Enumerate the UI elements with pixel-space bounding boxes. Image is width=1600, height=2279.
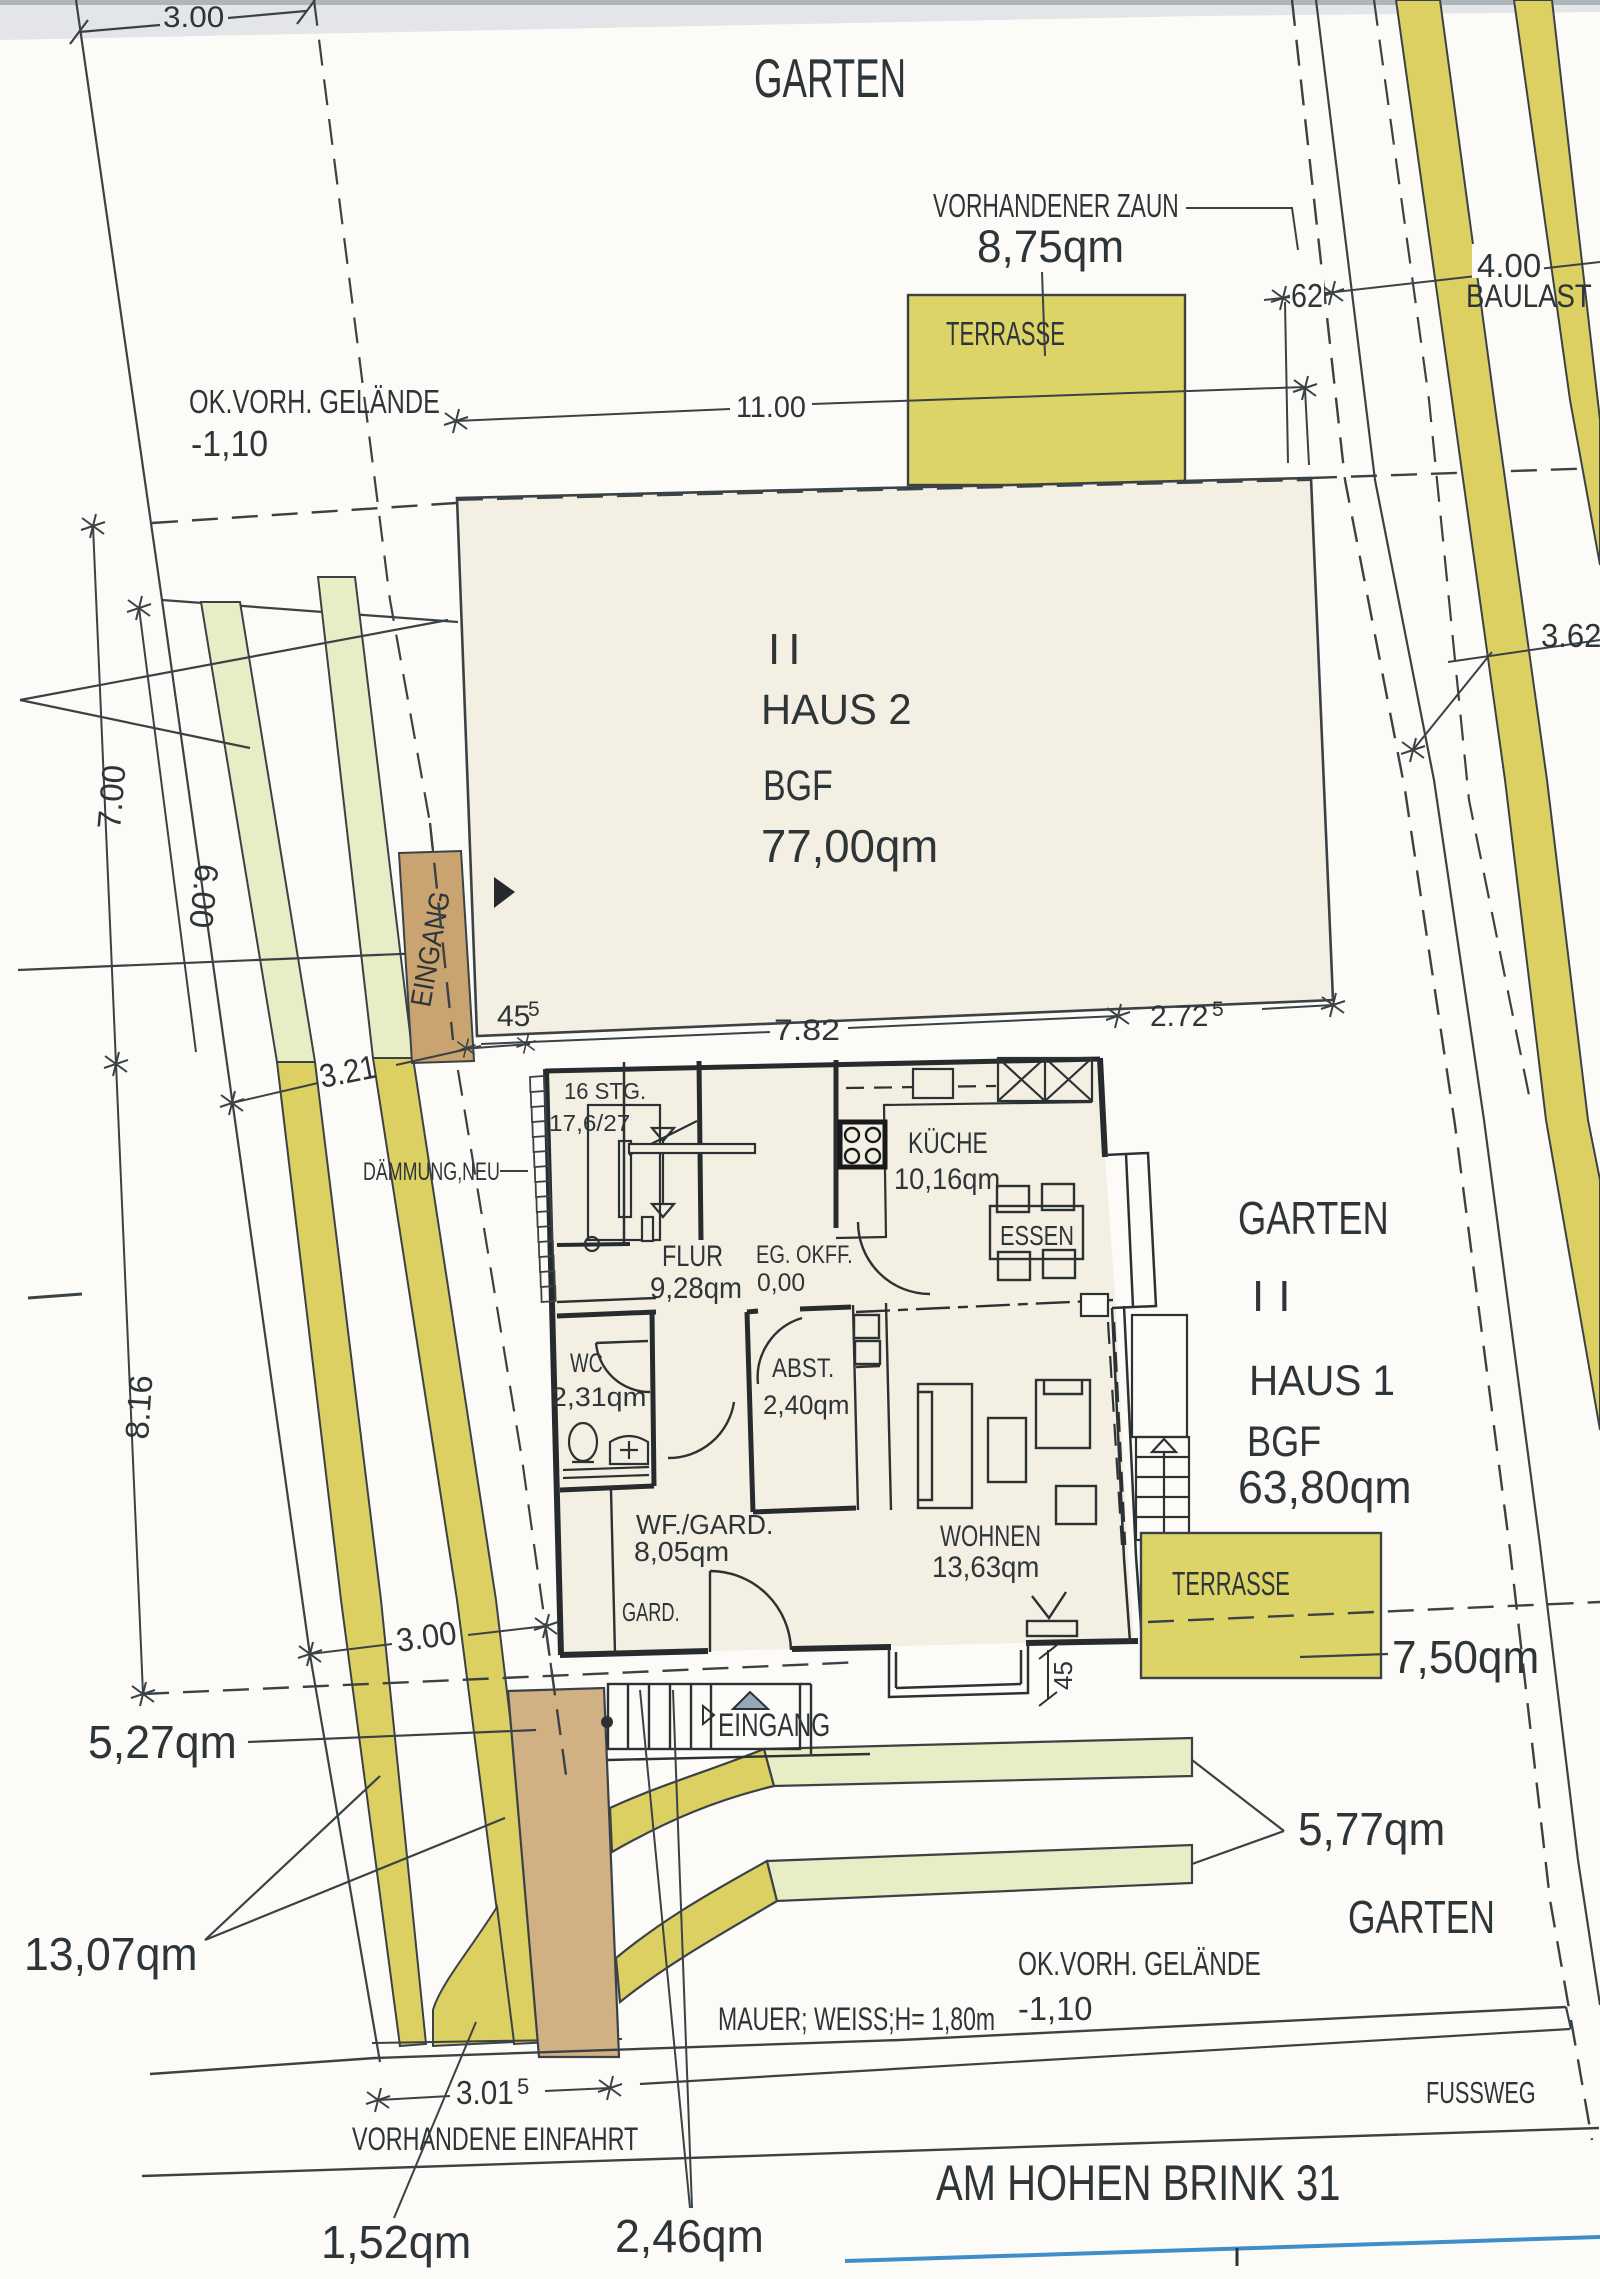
svg-text:2,31qm: 2,31qm <box>551 1382 646 1412</box>
svg-text:63,80qm: 63,80qm <box>1238 1461 1412 1513</box>
svg-text:TERRASSE: TERRASSE <box>1172 1566 1290 1603</box>
svg-text:BGF: BGF <box>1247 1418 1321 1466</box>
svg-text:3.00: 3.00 <box>163 0 224 34</box>
svg-text:-1,10: -1,10 <box>1018 1990 1092 2027</box>
svg-text:5: 5 <box>1212 998 1224 1021</box>
svg-text:VORHANDENER ZAUN: VORHANDENER ZAUN <box>933 188 1179 225</box>
svg-text:2,40qm: 2,40qm <box>763 1390 849 1421</box>
svg-text:1,52qm: 1,52qm <box>321 2217 471 2269</box>
svg-text:GARTEN: GARTEN <box>1348 1892 1495 1944</box>
svg-text:5,27qm: 5,27qm <box>88 1716 237 1768</box>
svg-text:8,75qm: 8,75qm <box>977 223 1124 272</box>
svg-text:BAULAST: BAULAST <box>1466 279 1592 314</box>
svg-text:OK.VORH. GELÄNDE: OK.VORH. GELÄNDE <box>189 384 440 421</box>
svg-text:16 STG.: 16 STG. <box>564 1079 646 1105</box>
svg-text:6.00: 6.00 <box>182 862 226 930</box>
svg-text:10,16qm: 10,16qm <box>894 1163 1000 1196</box>
svg-text:FUSSWEG: FUSSWEG <box>1426 2075 1536 2110</box>
svg-text:3.01: 3.01 <box>456 2075 514 2112</box>
svg-text:-1,10: -1,10 <box>191 424 268 464</box>
svg-text:77,00qm: 77,00qm <box>761 821 938 872</box>
svg-text:ESSEN: ESSEN <box>1000 1220 1074 1251</box>
svg-text:EINGANG: EINGANG <box>718 1708 830 1744</box>
svg-text:45: 45 <box>497 1000 530 1033</box>
svg-text:GARTEN: GARTEN <box>1238 1192 1389 1244</box>
svg-text:BGF: BGF <box>763 762 833 810</box>
svg-text:7,50qm: 7,50qm <box>1392 1631 1539 1683</box>
svg-text:WOHNEN: WOHNEN <box>940 1519 1041 1553</box>
svg-text:0,00: 0,00 <box>757 1269 805 1297</box>
svg-text:45: 45 <box>1048 1661 1078 1690</box>
svg-text:62: 62 <box>1291 277 1323 314</box>
svg-text:5: 5 <box>517 2074 529 2099</box>
svg-text:2.72: 2.72 <box>1150 1000 1208 1033</box>
svg-text:8.16: 8.16 <box>118 1374 159 1441</box>
svg-text:HAUS 2: HAUS 2 <box>761 685 912 733</box>
svg-text:ABST.: ABST. <box>772 1354 834 1383</box>
svg-text:TERRASSE: TERRASSE <box>946 316 1065 352</box>
svg-text:II: II <box>768 625 808 674</box>
svg-text:7.82: 7.82 <box>774 1013 840 1047</box>
svg-text:GARD.: GARD. <box>622 1598 680 1627</box>
svg-text:AM HOHEN BRINK 31: AM HOHEN BRINK 31 <box>936 2155 1340 2211</box>
svg-text:KÜCHE: KÜCHE <box>908 1126 988 1160</box>
svg-text:5,77qm: 5,77qm <box>1298 1803 1445 1855</box>
svg-text:WC: WC <box>570 1349 603 1379</box>
svg-text:5: 5 <box>528 998 540 1021</box>
svg-text:2,46qm: 2,46qm <box>615 2210 764 2262</box>
svg-text:VORHANDENE EINFAHRT: VORHANDENE EINFAHRT <box>352 2121 638 2156</box>
svg-text:FLUR: FLUR <box>662 1239 723 1272</box>
svg-text:EG. OKFF.: EG. OKFF. <box>756 1241 853 1269</box>
svg-text:17,6/27: 17,6/27 <box>549 1112 630 1137</box>
svg-text:DÄMMUNG,NEU: DÄMMUNG,NEU <box>363 1157 500 1186</box>
svg-text:3.62: 3.62 <box>1541 617 1600 654</box>
svg-text:HAUS 1: HAUS 1 <box>1249 1356 1395 1404</box>
svg-text:11.00: 11.00 <box>736 390 806 424</box>
svg-text:8,05qm: 8,05qm <box>634 1535 729 1567</box>
svg-text:MAUER; WEISS;H= 1,80m: MAUER; WEISS;H= 1,80m <box>718 2001 995 2037</box>
svg-text:9,28qm: 9,28qm <box>650 1272 742 1305</box>
svg-text:7.00: 7.00 <box>90 763 132 830</box>
svg-text:GARTEN: GARTEN <box>754 48 906 109</box>
svg-text:II: II <box>1252 1272 1304 1321</box>
svg-text:13,07qm: 13,07qm <box>24 1928 198 1980</box>
svg-text:OK.VORH. GELÄNDE: OK.VORH. GELÄNDE <box>1018 1947 1261 1983</box>
svg-text:13,63qm: 13,63qm <box>932 1551 1039 1584</box>
